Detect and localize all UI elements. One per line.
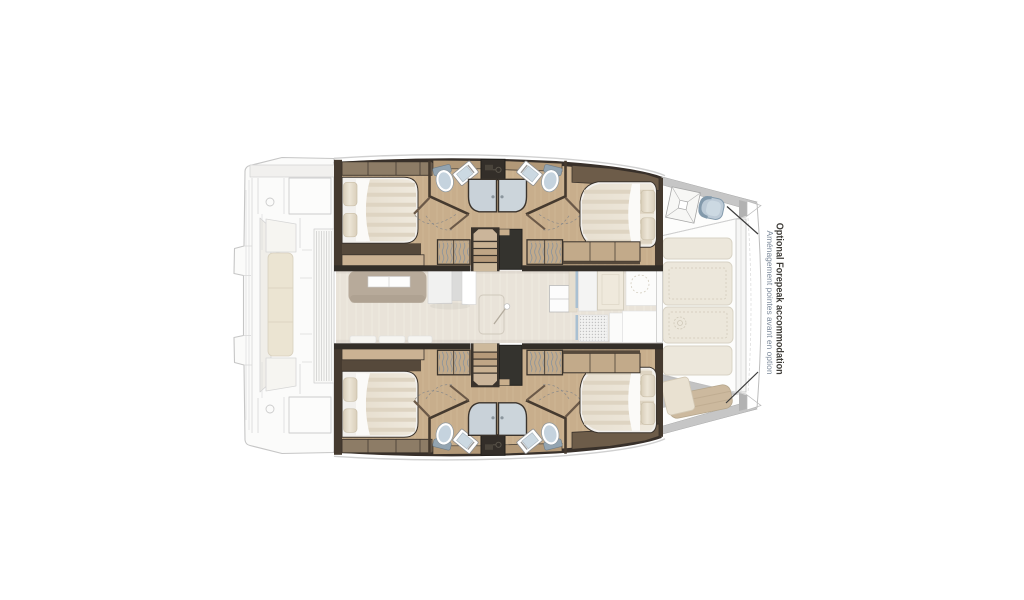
svg-text:Aménagement pointes avant en o: Aménagement pointes avant en option (765, 231, 775, 375)
